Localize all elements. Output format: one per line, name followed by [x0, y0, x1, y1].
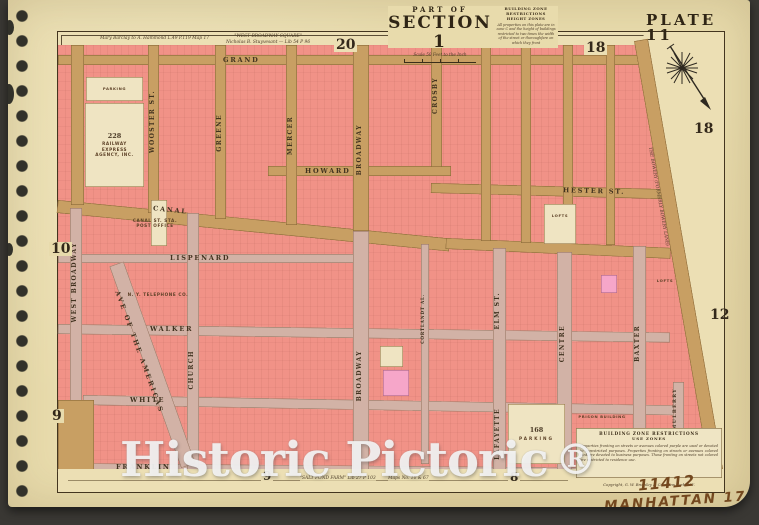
street-label-hester: HESTER ST.: [563, 187, 625, 195]
street-label-church: CHURCH: [189, 350, 195, 390]
adjoining-plate-number-top-left: 20: [334, 38, 357, 52]
street-label-greene: GREENE: [217, 114, 223, 152]
street-label-grand: GRAND: [223, 57, 260, 64]
scale-bar: [404, 59, 476, 63]
street-label-cortlandt: CORTLANDT AL.: [421, 294, 425, 344]
street-cortlandt-alley: [421, 244, 429, 464]
street-label-elm: ELM ST.: [495, 292, 501, 329]
railway-express-block: 228 RAILWAY EXPRESS AGENCY, INC.: [85, 103, 144, 187]
plate-number-label: PLATE 11: [646, 13, 750, 43]
plate-title-block: PART OF SECTION 1 Scale 50 Feet to the I…: [388, 6, 558, 48]
street-label-howard: HOWARD: [305, 168, 351, 175]
street-unnamed-vertical: [481, 45, 491, 241]
compass-rose-icon: [658, 42, 716, 114]
street-unnamed-vertical: [521, 45, 531, 243]
deed-annotation-left: Mary Barclay to A. Hammond L.49 P.119 Ma…: [100, 36, 209, 42]
deed-annotation-right: "WEST BROADWAY SQUARE" Nicholas B. Stuyv…: [226, 34, 310, 45]
height-zones-title: BUILDING ZONE RESTRICTIONS: [496, 6, 556, 17]
registered-trademark-icon: ®: [555, 439, 596, 481]
height-zones-text: All properties on this plate are in zone…: [496, 23, 556, 46]
parking-label: PARKING: [103, 87, 126, 92]
deed-annotation-right-line2: Nicholas B. Stuyvesant — Lib 54 P 96: [226, 40, 310, 46]
height-zones-subtitle: HEIGHT ZONES: [496, 17, 556, 22]
telephone-co-label: N. Y. TELEPHONE CO.: [116, 292, 200, 297]
adjoining-plate-number-right-upper: 18: [692, 122, 715, 136]
adjoining-plate-number-right-lower: 12: [708, 308, 731, 322]
use-zones-subtitle: USE ZONES: [580, 436, 718, 441]
scale-note: Scale 50 Feet to the Inch: [388, 52, 492, 58]
use-zones-text: Properties fronting on streets or avenue…: [580, 444, 718, 464]
watermark: Historic Pictoric ®: [120, 436, 596, 484]
watermark-text: Historic Pictoric: [120, 436, 548, 484]
lofts-label: LOFTS: [548, 214, 572, 219]
cream-building: [380, 346, 403, 367]
parking-lot-block: PARKING: [86, 77, 143, 101]
prison-building-label: PRISON BUILDING: [572, 415, 632, 420]
map-plate: PARKING 228 RAILWAY EXPRESS AGENCY, INC.…: [57, 31, 725, 493]
binding-holes: [10, 4, 34, 504]
scanned-atlas-page: PARKING 228 RAILWAY EXPRESS AGENCY, INC.…: [0, 0, 759, 525]
street-label-broadway-north: BROADWAY: [357, 124, 363, 175]
street-label-lispenard: LISPENARD: [170, 255, 230, 262]
railway-express-label: RAILWAY EXPRESS AGENCY, INC.: [91, 141, 139, 157]
street-label-west-broadway: WEST BROADWAY: [72, 242, 78, 323]
loft-building-block: [544, 204, 576, 244]
street-label-mercer: MERCER: [288, 116, 294, 155]
adjoining-plate-number-left-upper: 10: [49, 242, 72, 256]
street-label-baxter: BAXTER: [635, 325, 641, 362]
section-title-group: PART OF SECTION 1 Scale 50 Feet to the I…: [388, 6, 492, 63]
highlighted-building: [601, 275, 617, 293]
street-label-broadway-south: BROADWAY: [357, 350, 363, 401]
street-label-crosby: CROSBY: [433, 77, 439, 114]
post-office-label: CANAL ST. STA. POST OFFICE: [124, 218, 186, 229]
street-west-broadway-north: [71, 45, 84, 205]
height-zones-note: BUILDING ZONE RESTRICTIONS HEIGHT ZONES …: [496, 6, 556, 46]
section-title: SECTION 1: [388, 14, 492, 51]
railway-block-number: 228: [108, 133, 122, 140]
map-paper-sheet: PARKING 228 RAILWAY EXPRESS AGENCY, INC.…: [8, 0, 750, 507]
lofts-label: LOFTS: [653, 279, 677, 284]
adjoining-plate-number-top-right: 18: [584, 41, 607, 55]
highlighted-building: [383, 370, 409, 396]
street-label-centre: CENTRE: [560, 325, 566, 362]
street-label-walker: WALKER: [150, 326, 193, 333]
adjoining-plate-number-left-lower: 9: [50, 409, 64, 423]
street-unnamed-vertical: [606, 45, 615, 245]
street-label-mulberry: MULBERRY: [674, 388, 679, 430]
street-label-wooster: WOOSTER ST.: [150, 90, 156, 153]
deed-annotation-right-line1: "WEST BROADWAY SQUARE": [226, 34, 310, 40]
use-zones-box: BUILDING ZONE RESTRICTIONS USE ZONES Pro…: [576, 428, 722, 478]
post-office-line2: POST OFFICE: [124, 223, 186, 228]
